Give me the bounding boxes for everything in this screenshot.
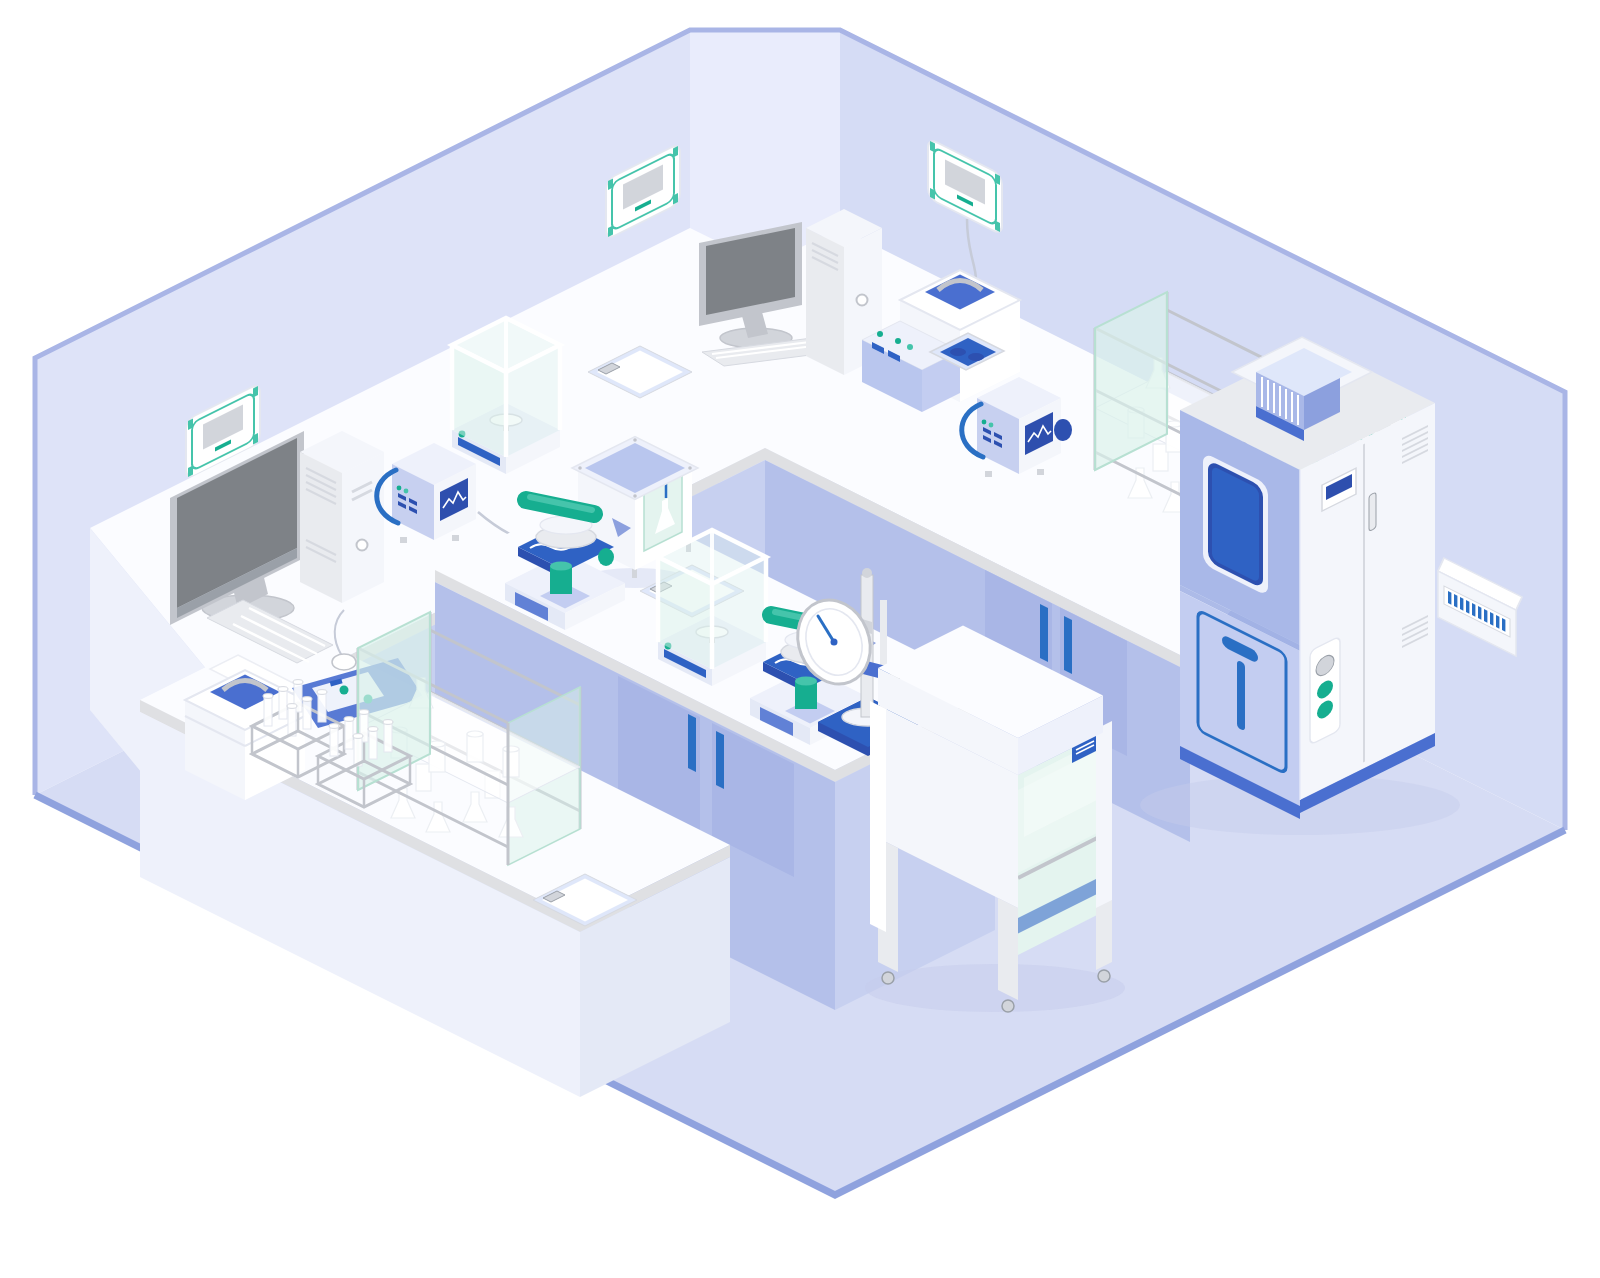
analytical-balance-2 bbox=[658, 530, 766, 686]
analyzer-knob bbox=[1054, 419, 1072, 441]
lab-room-scene: laboratory room bbox=[0, 0, 1600, 1278]
door-handle bbox=[688, 714, 696, 772]
door-handle bbox=[1064, 616, 1072, 674]
analytical-balance-1 bbox=[452, 318, 560, 474]
door-handle bbox=[716, 731, 724, 789]
door-handle bbox=[1040, 604, 1048, 662]
pc-tower-left bbox=[300, 431, 384, 603]
lab-illustration: laboratory room bbox=[0, 0, 1600, 1278]
mouse-left bbox=[332, 654, 356, 670]
